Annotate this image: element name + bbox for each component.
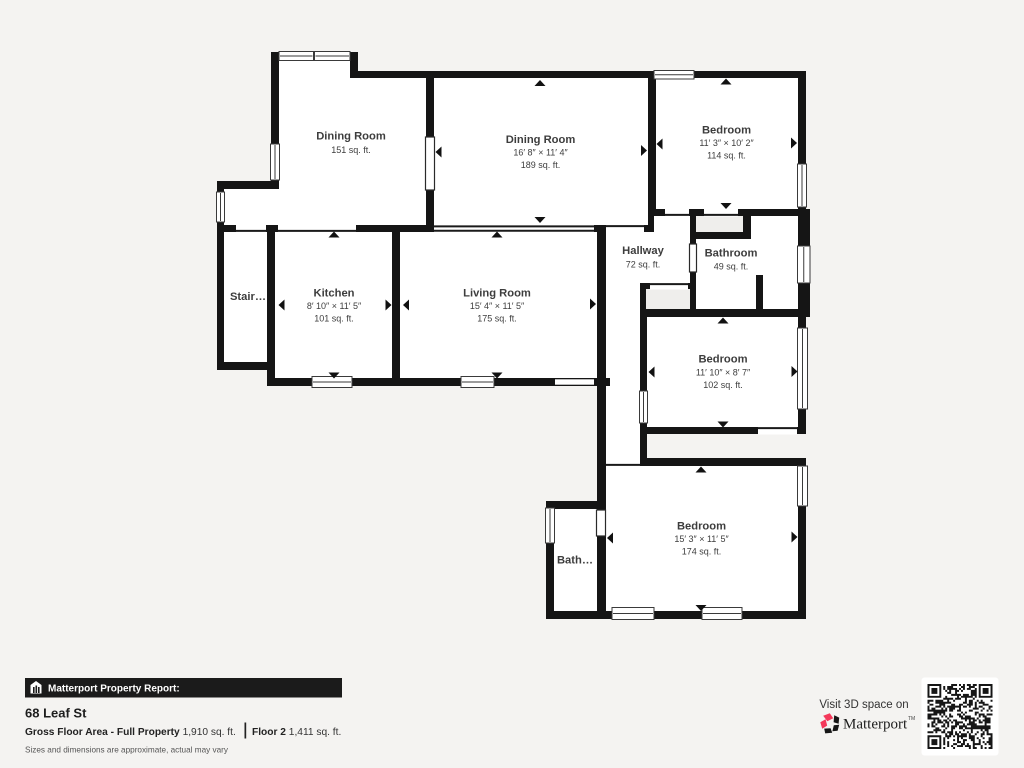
svg-text:Bedroom: Bedroom: [677, 520, 726, 532]
svg-text:49 sq. ft.: 49 sq. ft.: [714, 261, 749, 271]
svg-text:189 sq. ft.: 189 sq. ft.: [521, 160, 561, 170]
svg-text:Dining Room: Dining Room: [316, 131, 386, 143]
svg-text:Bathroom: Bathroom: [705, 248, 758, 260]
svg-text:TM: TM: [908, 716, 915, 722]
svg-text:Bath…: Bath…: [557, 555, 593, 567]
svg-text:101 sq. ft.: 101 sq. ft.: [314, 314, 354, 324]
svg-text:Matterport Property Report:: Matterport Property Report:: [48, 684, 180, 695]
svg-text:Floor 2 1,411 sq. ft.: Floor 2 1,411 sq. ft.: [252, 727, 341, 738]
svg-text:11′ 10″ × 8′ 7″: 11′ 10″ × 8′ 7″: [696, 367, 751, 377]
svg-text:15′ 4″ × 11′ 5″: 15′ 4″ × 11′ 5″: [470, 301, 525, 311]
svg-text:Kitchen: Kitchen: [313, 287, 354, 299]
svg-text:Dining Room: Dining Room: [506, 134, 576, 146]
svg-text:Living Room: Living Room: [463, 287, 531, 299]
svg-text:174 sq. ft.: 174 sq. ft.: [682, 547, 722, 557]
svg-text:Matterport: Matterport: [843, 717, 908, 733]
svg-text:175 sq. ft.: 175 sq. ft.: [477, 314, 517, 324]
svg-text:Visit 3D space on: Visit 3D space on: [819, 699, 908, 711]
svg-text:114 sq. ft.: 114 sq. ft.: [707, 151, 746, 161]
svg-text:15′ 3″ × 11′ 5″: 15′ 3″ × 11′ 5″: [674, 534, 729, 544]
svg-text:Bedroom: Bedroom: [702, 124, 751, 136]
svg-text:68 Leaf St: 68 Leaf St: [25, 706, 87, 721]
svg-text:Stair…: Stair…: [230, 291, 266, 303]
svg-text:11′ 3″ × 10′ 2″: 11′ 3″ × 10′ 2″: [699, 138, 754, 148]
svg-text:Hallway: Hallway: [622, 245, 664, 257]
svg-text:16′ 8″ × 11′ 4″: 16′ 8″ × 11′ 4″: [513, 148, 568, 158]
svg-text:102 sq. ft.: 102 sq. ft.: [703, 380, 743, 390]
svg-text:8′ 10″ × 11′ 5″: 8′ 10″ × 11′ 5″: [307, 301, 362, 311]
svg-text:Gross Floor Area - Full Proper: Gross Floor Area - Full Property 1,910 s…: [25, 727, 236, 738]
svg-text:72 sq. ft.: 72 sq. ft.: [626, 259, 661, 269]
svg-text:151 sq. ft.: 151 sq. ft.: [331, 145, 371, 155]
svg-text:Bedroom: Bedroom: [698, 354, 747, 366]
svg-text:Sizes and dimensions are appro: Sizes and dimensions are approximate, ac…: [25, 746, 229, 755]
